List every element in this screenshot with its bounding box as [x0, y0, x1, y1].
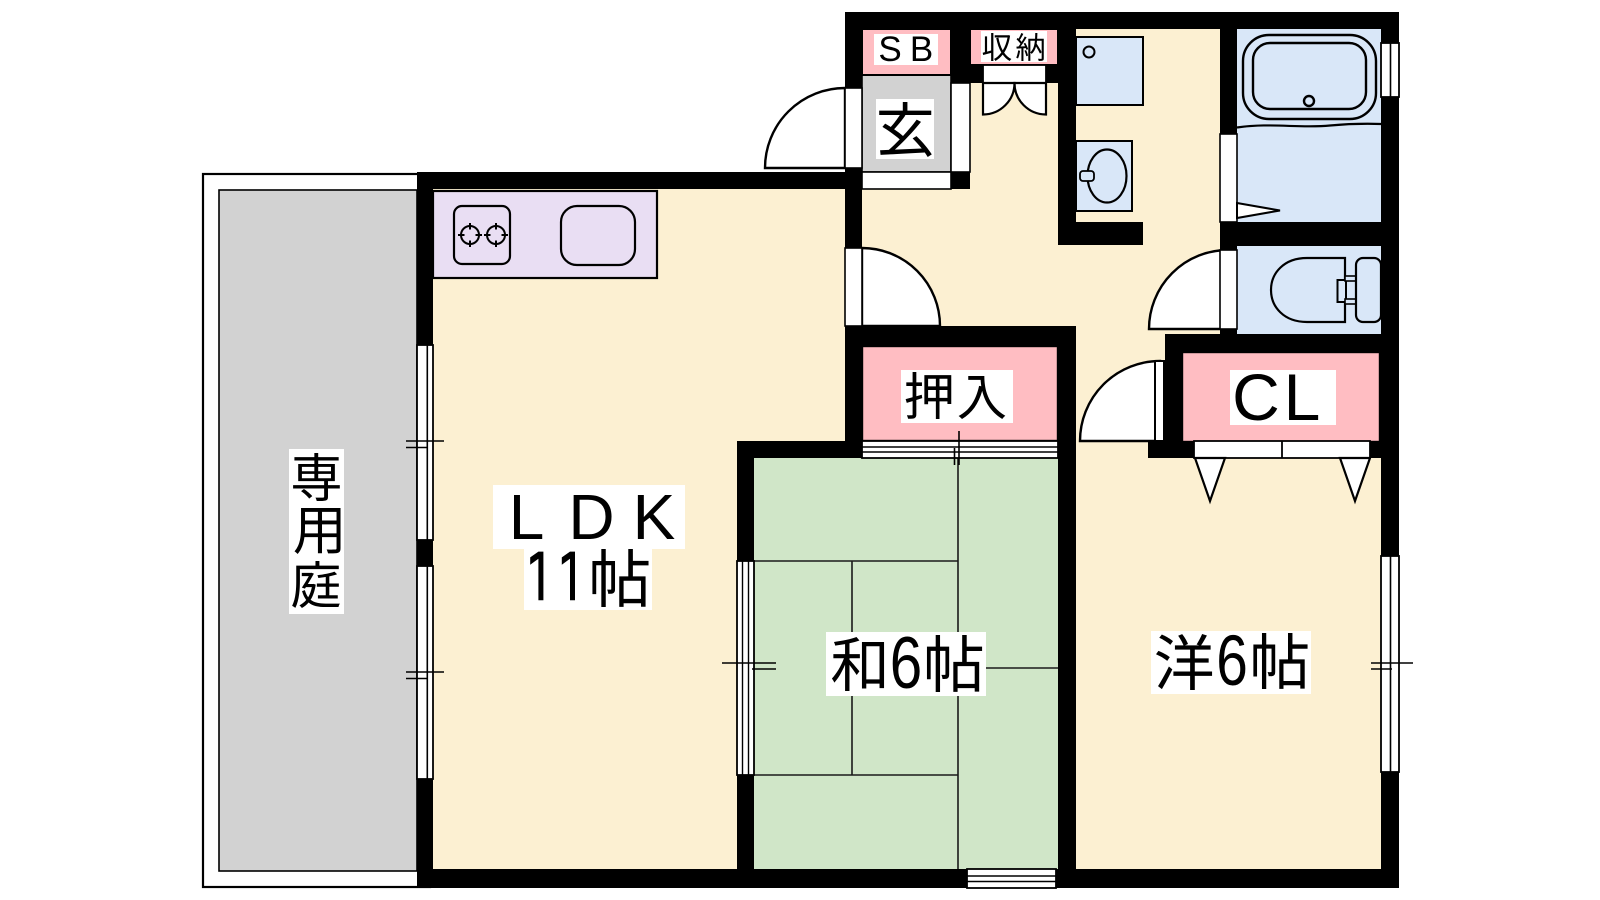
- svg-text:D: D: [568, 481, 614, 553]
- svg-text:C: C: [1232, 360, 1280, 434]
- svg-text:L: L: [1284, 360, 1321, 434]
- svg-text:K: K: [633, 481, 676, 553]
- svg-text:B: B: [910, 30, 933, 69]
- svg-text:L: L: [509, 481, 545, 553]
- svg-text:6: 6: [890, 623, 922, 705]
- svg-text:S: S: [878, 30, 901, 69]
- svg-text:6: 6: [1216, 621, 1248, 701]
